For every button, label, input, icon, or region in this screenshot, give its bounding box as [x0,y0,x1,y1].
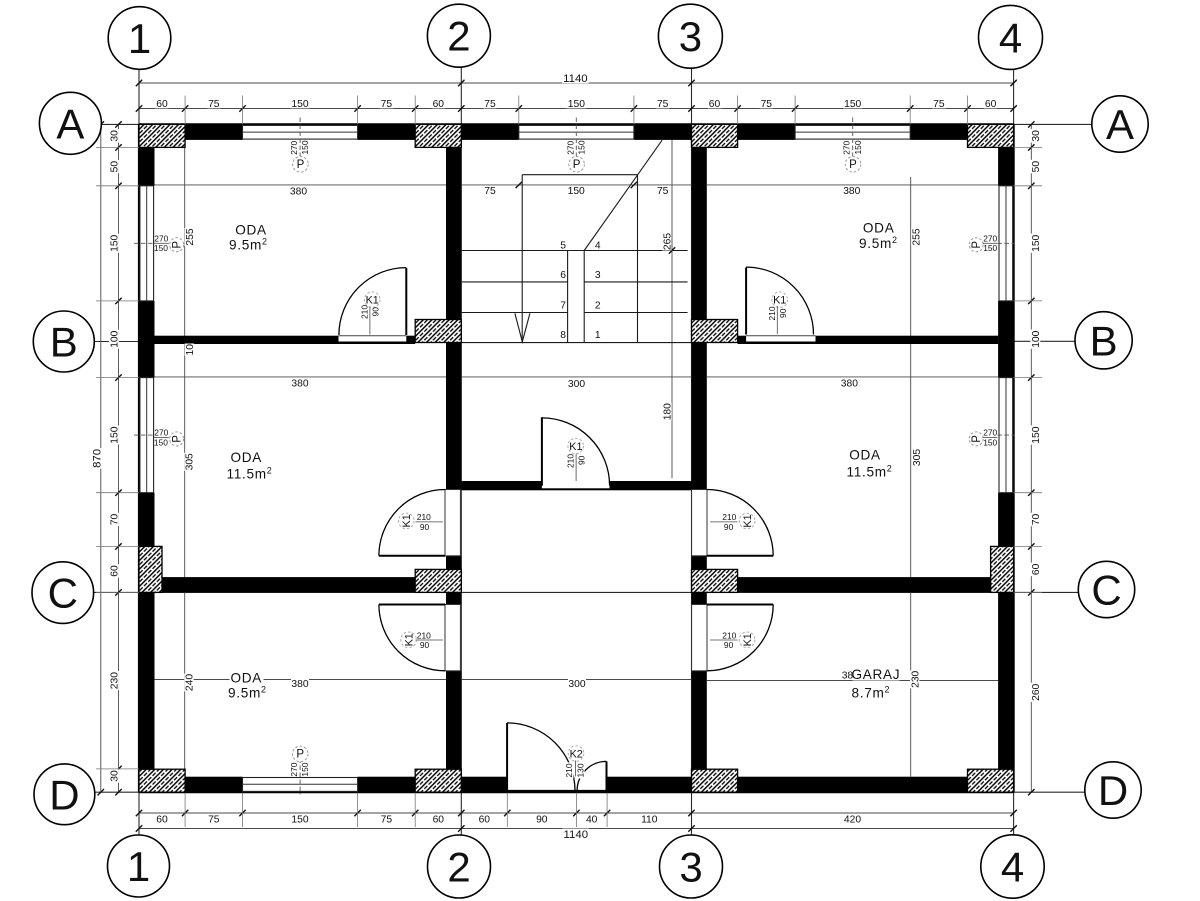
svg-text:ODA: ODA [231,670,263,685]
svg-text:150: 150 [1031,426,1042,443]
svg-text:P: P [573,159,581,171]
svg-text:270: 270 [983,427,997,437]
svg-text:A: A [1106,101,1134,148]
svg-text:1: 1 [128,15,151,62]
svg-text:380: 380 [290,186,307,197]
svg-text:30: 30 [1031,130,1042,142]
svg-text:70: 70 [1031,514,1042,526]
svg-text:870: 870 [92,449,104,468]
svg-text:90: 90 [724,522,734,532]
svg-text:255: 255 [912,228,923,245]
svg-text:75: 75 [484,99,496,110]
svg-text:K1: K1 [569,441,582,453]
svg-text:60: 60 [1031,563,1042,575]
svg-text:10: 10 [185,344,196,356]
svg-text:3: 3 [679,13,702,60]
svg-text:70: 70 [110,514,121,526]
svg-text:30: 30 [110,770,121,782]
svg-text:210: 210 [359,305,369,319]
svg-text:90: 90 [371,307,381,317]
svg-text:75: 75 [208,815,220,826]
svg-text:150: 150 [291,99,308,110]
svg-text:B: B [50,319,78,366]
svg-text:305: 305 [185,453,196,470]
svg-text:210: 210 [566,454,576,468]
svg-text:2: 2 [447,13,470,60]
svg-text:4: 4 [1001,844,1024,891]
svg-text:P: P [849,159,857,171]
svg-text:A: A [56,100,84,147]
svg-text:5: 5 [560,240,566,251]
svg-text:75: 75 [484,186,496,197]
svg-text:150: 150 [110,234,121,251]
svg-text:D: D [1098,767,1128,814]
svg-text:270: 270 [983,233,997,243]
svg-text:75: 75 [657,99,669,110]
svg-text:270: 270 [289,762,299,776]
svg-text:150: 150 [291,815,308,826]
svg-text:150: 150 [110,426,121,443]
svg-text:7: 7 [560,300,566,311]
svg-text:210: 210 [417,512,431,522]
svg-text:130: 130 [575,763,585,777]
svg-text:75: 75 [657,186,669,197]
svg-text:150: 150 [568,186,585,197]
svg-text:210: 210 [564,763,574,777]
svg-text:270: 270 [154,233,168,243]
svg-text:1140: 1140 [564,829,589,841]
svg-text:150: 150 [983,243,997,253]
svg-text:100: 100 [110,330,121,347]
svg-text:90: 90 [420,522,430,532]
svg-text:150: 150 [844,99,861,110]
svg-text:K1: K1 [401,514,413,527]
svg-text:75: 75 [208,99,220,110]
svg-text:90: 90 [724,640,734,650]
svg-text:230: 230 [110,672,121,689]
svg-text:4: 4 [999,14,1022,61]
svg-text:90: 90 [420,640,430,650]
svg-text:90: 90 [778,308,788,318]
svg-text:305: 305 [912,449,923,466]
svg-text:150: 150 [154,437,168,447]
svg-text:11.5m2: 11.5m2 [227,465,273,481]
svg-text:380: 380 [843,186,860,197]
svg-text:P: P [971,435,983,443]
svg-text:6: 6 [560,270,566,281]
svg-text:210: 210 [722,630,736,640]
svg-text:180: 180 [663,403,674,420]
svg-text:50: 50 [1031,161,1042,173]
svg-text:P: P [172,241,184,249]
svg-text:100: 100 [1031,330,1042,347]
svg-text:60: 60 [479,815,491,826]
svg-text:150: 150 [154,243,168,253]
svg-text:K1: K1 [742,633,754,646]
svg-text:90: 90 [536,815,548,826]
svg-text:60: 60 [156,99,168,110]
svg-text:60: 60 [110,565,121,577]
svg-text:K1: K1 [773,295,786,307]
svg-text:75: 75 [933,99,945,110]
svg-text:K1: K1 [404,633,416,646]
svg-text:255: 255 [185,228,196,245]
svg-text:150: 150 [568,99,585,110]
svg-text:P: P [296,749,304,761]
svg-text:150: 150 [300,140,310,154]
svg-text:265: 265 [662,233,673,250]
svg-text:D: D [49,771,79,818]
svg-text:9.5m2: 9.5m2 [228,685,267,701]
svg-text:9.5m2: 9.5m2 [859,235,898,251]
svg-text:GARAJ: GARAJ [851,667,900,682]
svg-text:110: 110 [641,815,658,826]
svg-text:90: 90 [577,455,587,465]
svg-text:4: 4 [595,240,601,251]
svg-text:2: 2 [595,300,601,311]
svg-text:8: 8 [560,330,566,341]
svg-text:60: 60 [156,815,168,826]
svg-text:2: 2 [447,844,470,891]
svg-text:3: 3 [595,270,601,281]
svg-text:75: 75 [761,99,773,110]
svg-text:ODA: ODA [231,450,263,465]
svg-text:K1: K1 [742,514,754,527]
svg-text:3: 3 [679,844,702,891]
svg-text:P: P [971,241,983,249]
svg-text:270: 270 [154,427,168,437]
svg-text:ODA: ODA [235,222,267,237]
svg-text:60: 60 [433,815,445,826]
svg-text:260: 260 [1031,683,1042,700]
svg-text:150: 150 [983,437,997,447]
svg-text:50: 50 [110,161,121,173]
svg-text:40: 40 [586,815,598,826]
svg-text:150: 150 [853,140,863,154]
svg-text:150: 150 [1031,234,1042,251]
svg-text:30: 30 [110,130,121,142]
svg-text:150: 150 [300,762,310,776]
svg-text:270: 270 [565,140,575,154]
svg-text:C: C [48,570,78,617]
svg-text:9.5m2: 9.5m2 [229,237,268,253]
svg-text:380: 380 [841,379,858,390]
svg-text:60: 60 [709,99,721,110]
svg-text:300: 300 [568,379,585,390]
svg-text:ODA: ODA [863,221,895,236]
svg-text:K1: K1 [366,295,379,307]
svg-text:150: 150 [577,140,587,154]
svg-text:230: 230 [910,670,921,687]
svg-text:380: 380 [291,379,308,390]
svg-text:1: 1 [127,843,150,890]
svg-text:B: B [1090,317,1118,364]
svg-text:75: 75 [381,815,393,826]
svg-text:K2: K2 [570,748,583,760]
svg-text:300: 300 [568,679,585,690]
svg-text:ODA: ODA [849,447,881,462]
svg-text:60: 60 [985,99,997,110]
svg-text:420: 420 [844,815,861,826]
svg-text:240: 240 [185,674,196,691]
svg-text:270: 270 [289,140,299,154]
svg-text:P: P [297,159,305,171]
svg-text:380: 380 [291,679,308,690]
svg-text:1140: 1140 [563,73,588,85]
svg-text:210: 210 [767,306,777,320]
svg-text:11.5m2: 11.5m2 [847,463,893,479]
svg-text:P: P [172,435,184,443]
svg-text:270: 270 [842,140,852,154]
svg-text:210: 210 [417,630,431,640]
svg-text:75: 75 [381,99,393,110]
svg-text:8.7m2: 8.7m2 [852,685,891,701]
svg-text:210: 210 [722,512,736,522]
svg-text:60: 60 [433,99,445,110]
svg-text:C: C [1091,567,1121,614]
svg-text:1: 1 [595,330,601,341]
